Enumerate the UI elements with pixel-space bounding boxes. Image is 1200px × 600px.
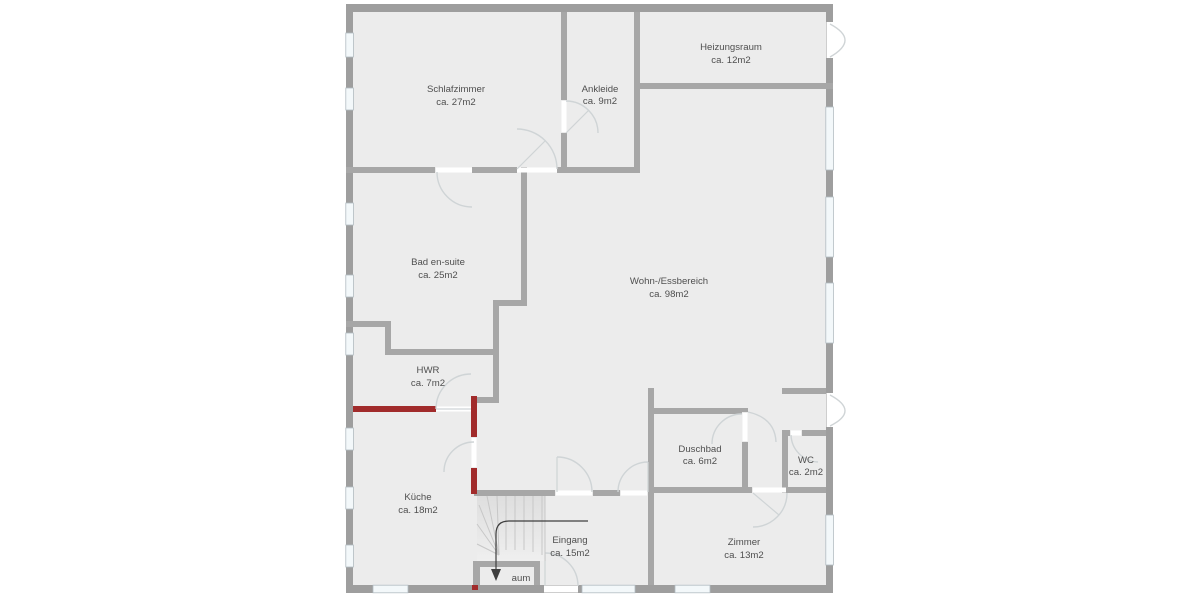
- room-label-bad-en-suite: Bad en-suite: [411, 257, 465, 268]
- room-area-schlafzimmer: ca. 27m2: [436, 97, 475, 108]
- room-area-heizungsraum: ca. 12m2: [711, 55, 750, 66]
- room-label-hwr: HWR: [417, 365, 440, 376]
- room-area-ankleide: ca. 9m2: [583, 96, 617, 107]
- room-area-eingang: ca. 15m2: [550, 548, 589, 559]
- room-label-schlafzimmer: Schlafzimmer: [427, 84, 486, 95]
- room-label-wohn-essbereich: Wohn-/Essbereich: [630, 276, 708, 287]
- stair-area: [477, 496, 545, 561]
- room-label-partial-aum: aum: [512, 573, 531, 584]
- room-area-wc: ca. 2m2: [789, 467, 823, 478]
- room-area-kueche: ca. 18m2: [398, 505, 437, 516]
- room-label-zimmer: Zimmer: [728, 537, 761, 548]
- floor-plan-canvas: Schlafzimmer ca. 27m2 Ankleide ca. 9m2 H…: [0, 0, 1200, 600]
- room-label-wc: WC: [798, 455, 814, 466]
- room-area-zimmer: ca. 13m2: [724, 550, 763, 561]
- room-area-duschbad: ca. 6m2: [683, 456, 717, 467]
- room-area-wohn-essbereich: ca. 98m2: [649, 289, 688, 300]
- room-label-ankleide: Ankleide: [582, 84, 619, 95]
- room-label-kueche: Küche: [404, 492, 431, 503]
- room-label-eingang: Eingang: [552, 535, 587, 546]
- room-area-bad-en-suite: ca. 25m2: [418, 270, 457, 281]
- room-label-duschbad: Duschbad: [678, 444, 721, 455]
- floor-plan-page: Schlafzimmer ca. 27m2 Ankleide ca. 9m2 H…: [0, 0, 1200, 600]
- room-label-heizungsraum: Heizungsraum: [700, 42, 762, 53]
- room-area-hwr: ca. 7m2: [411, 378, 445, 389]
